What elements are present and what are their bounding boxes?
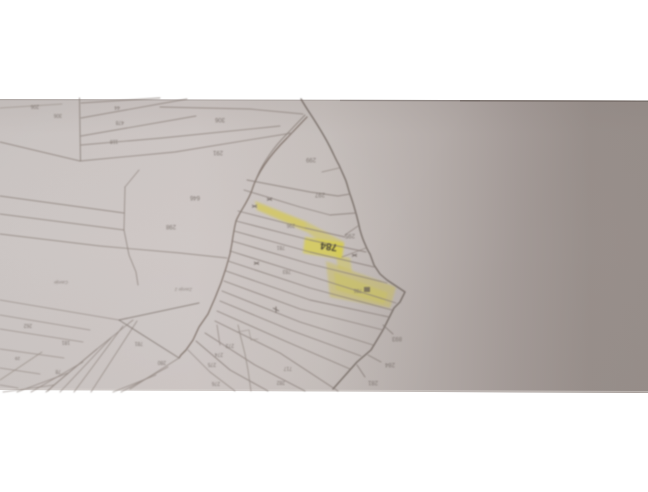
- svg-text:284: 284: [384, 361, 395, 367]
- svg-text:297: 297: [314, 191, 325, 197]
- svg-text:262: 262: [23, 322, 32, 328]
- svg-text:276: 276: [211, 380, 220, 386]
- svg-text:181: 181: [61, 339, 70, 345]
- svg-text:781: 781: [276, 244, 285, 250]
- svg-text:206: 206: [30, 103, 39, 109]
- svg-text:717: 717: [283, 365, 292, 371]
- svg-text:44: 44: [114, 104, 120, 110]
- svg-text:781: 781: [134, 340, 143, 346]
- svg-text:281: 281: [367, 379, 378, 385]
- svg-text:29: 29: [14, 356, 20, 361]
- svg-text:118: 118: [110, 138, 118, 144]
- svg-text:893: 893: [391, 335, 402, 341]
- svg-text:291: 291: [212, 149, 223, 155]
- svg-text:646: 646: [189, 194, 200, 200]
- svg-text:274: 274: [214, 351, 223, 357]
- svg-text:273: 273: [225, 342, 234, 348]
- svg-text:280: 280: [157, 359, 166, 365]
- svg-text:Zavoje 2: Zavoje 2: [174, 287, 193, 292]
- svg-text:786: 786: [353, 287, 362, 293]
- svg-text:299: 299: [305, 156, 316, 162]
- svg-text:478: 478: [115, 119, 124, 125]
- svg-text:306: 306: [214, 116, 225, 122]
- svg-text:783: 783: [282, 268, 291, 274]
- svg-text:282: 282: [276, 379, 285, 385]
- svg-text:Cavoje: Cavoje: [53, 280, 68, 285]
- svg-text:298: 298: [165, 223, 176, 229]
- svg-text:78: 78: [55, 368, 61, 374]
- svg-text:296: 296: [286, 222, 295, 228]
- svg-text:306: 306: [53, 112, 62, 118]
- svg-text:295: 295: [344, 232, 355, 238]
- svg-text:275: 275: [207, 361, 216, 367]
